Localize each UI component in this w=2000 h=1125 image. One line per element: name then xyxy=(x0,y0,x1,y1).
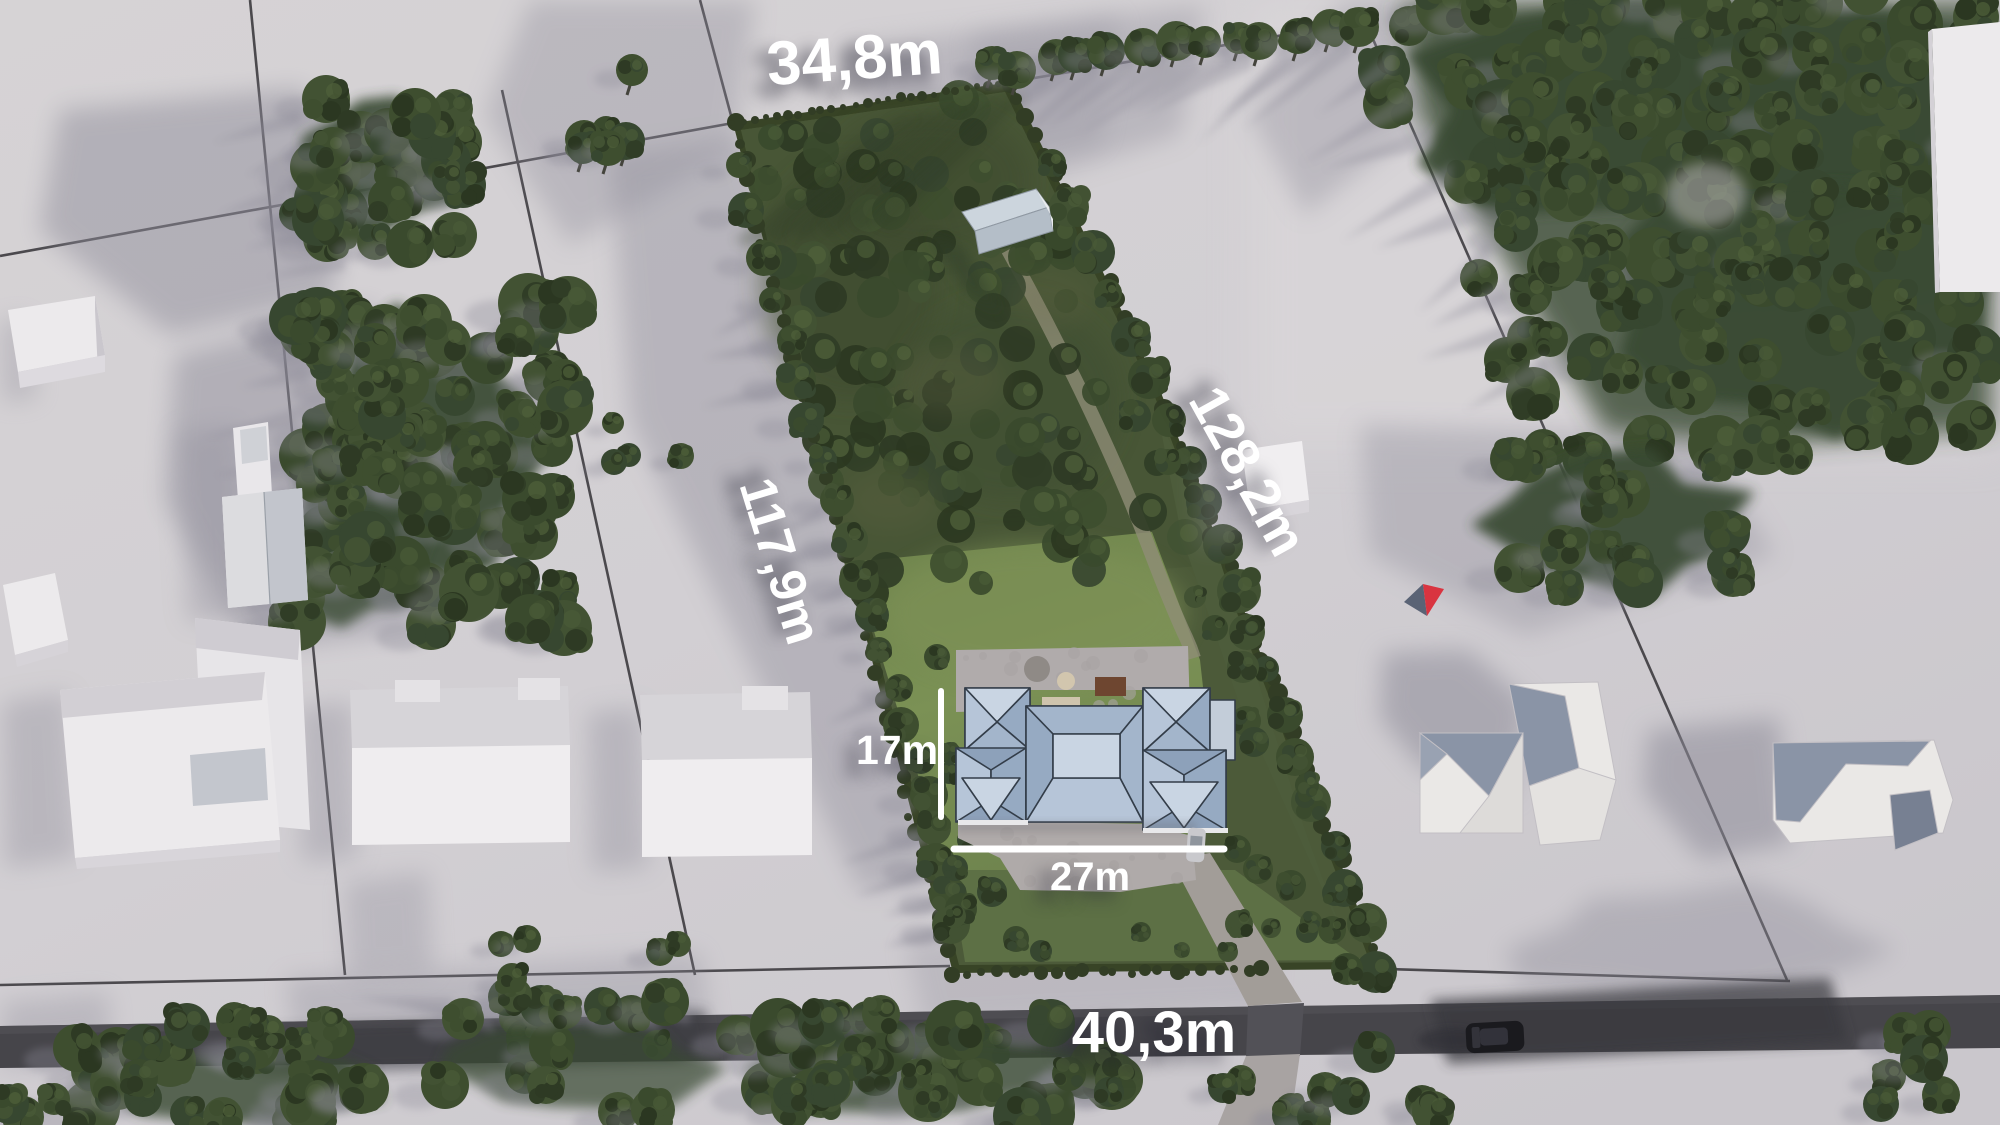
svg-text:34,8m: 34,8m xyxy=(764,18,944,99)
svg-text:40,3m: 40,3m xyxy=(1072,1000,1236,1065)
svg-text:27m: 27m xyxy=(1050,855,1130,899)
svg-text:17m: 17m xyxy=(856,727,938,773)
